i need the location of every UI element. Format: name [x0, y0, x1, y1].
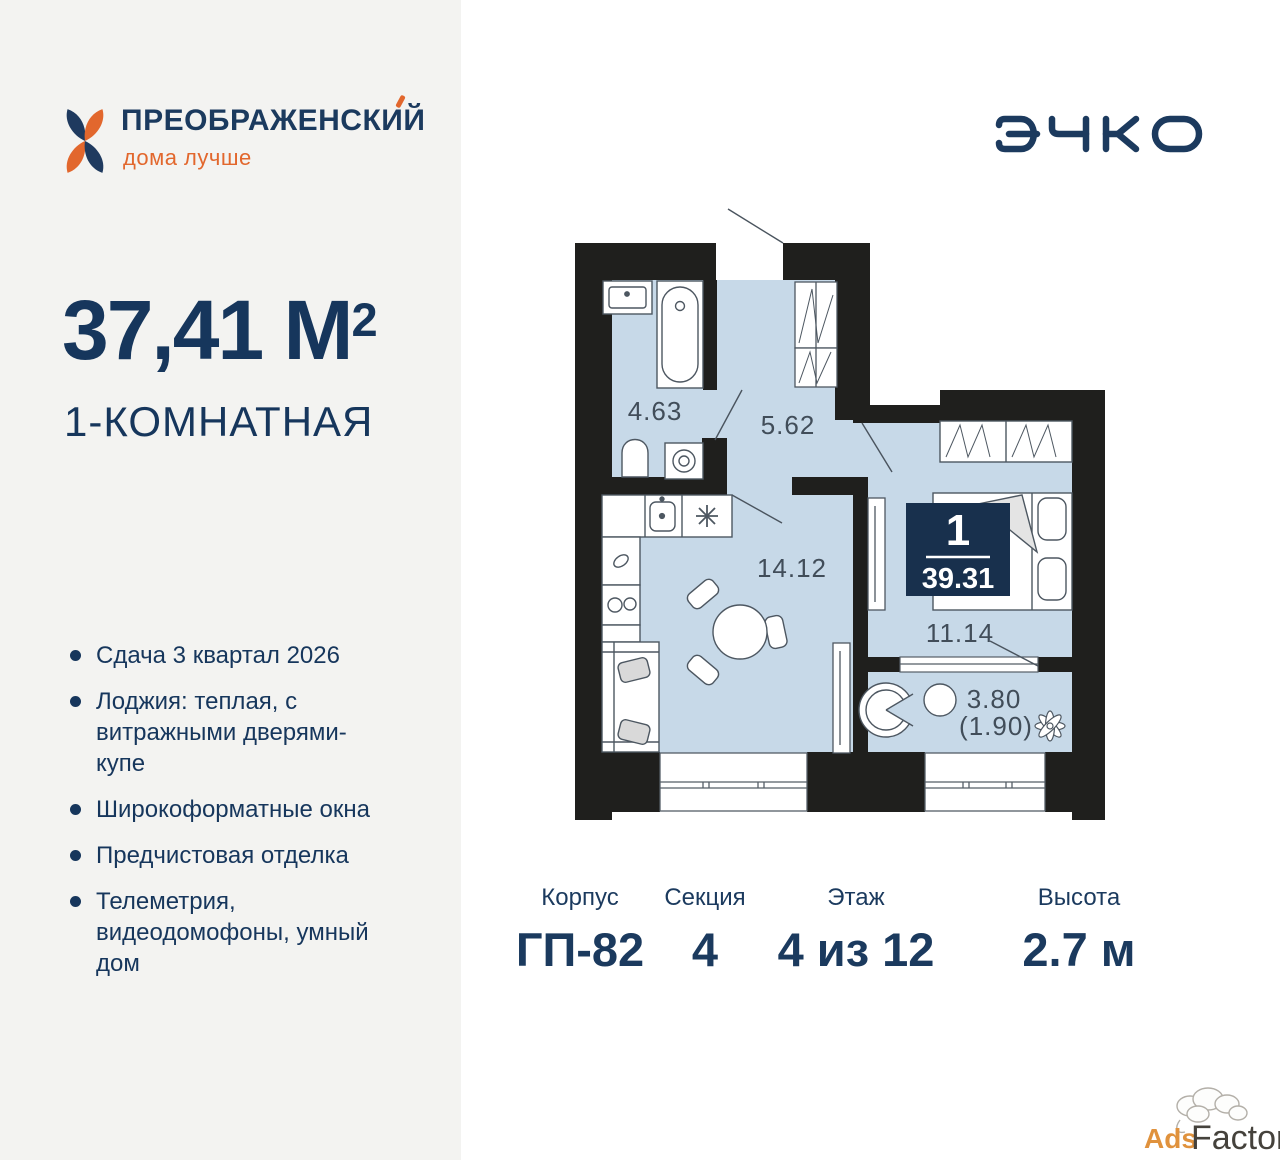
detail-value: 4: [664, 922, 745, 977]
loggia-table-icon: [924, 684, 956, 716]
flyer: ПРЕОБРАЖЕНСКИЙ дома лучше ЭНКО 37,41 М2: [0, 0, 1280, 1160]
detail-etazh: Этаж 4 из 12: [778, 884, 935, 977]
bullet-dot-icon: [70, 896, 81, 907]
watermark-ads: Ads: [1144, 1123, 1197, 1154]
area-badge: 1 39.31: [906, 503, 1010, 596]
bullet-dot-icon: [70, 804, 81, 815]
adsfactory-watermark: Ads Factory: [1130, 1080, 1280, 1156]
loggia-window: [925, 753, 1045, 811]
room-label-loggia: 3.80: [967, 684, 1022, 714]
room-label-bedroom: 11.14: [926, 618, 994, 648]
detail-label: Корпус: [516, 884, 644, 912]
bedroom-wardrobe-icon: [940, 421, 1072, 462]
toilet-icon: [622, 440, 648, 478]
brand-pinwheel-icon: [56, 105, 114, 177]
brand-name: ПРЕОБРАЖЕНСКИЙ: [121, 104, 451, 138]
room-label-kitchen: 14.12: [757, 553, 827, 583]
detail-vysota: Высота 2.7 м: [1022, 884, 1135, 977]
list-item: Лоджия: теплая, с витражными дверями-куп…: [70, 686, 375, 779]
badge-total-area: 39.31: [922, 563, 995, 595]
list-item: Предчистовая отделка: [70, 840, 375, 871]
detail-value: ГП-82: [516, 922, 644, 977]
bullet-dot-icon: [70, 696, 81, 707]
room-label-hallway: 5.62: [761, 410, 816, 440]
area-superscript: 2: [352, 293, 378, 346]
brand-tagline: дома лучше: [123, 145, 451, 171]
apartment-type-title: 1-КОМНАТНАЯ: [64, 398, 373, 446]
enko-letter-o: [1155, 119, 1199, 149]
watermark-factory: Factory: [1191, 1119, 1280, 1156]
floor-plan: 4.63 5.62 14.12 11.14 3.80 (1.90) 1 39.3…: [570, 205, 1110, 825]
enko-letter-e: [999, 119, 1037, 149]
bathroom-sink-icon: [603, 281, 652, 314]
sofa-icon: [602, 642, 659, 752]
enko-letter-n: [1052, 119, 1086, 149]
room-label-bathroom: 4.63: [628, 396, 683, 426]
list-item: Широкоформатные окна: [70, 794, 375, 825]
washing-machine-icon: [665, 443, 703, 479]
stove-icon: [696, 505, 718, 527]
badge-rooms-count: 1: [946, 506, 970, 555]
kitchen-window: [660, 753, 807, 811]
detail-label: Этаж: [778, 884, 935, 912]
feature-list: Сдача 3 квартал 2026 Лоджия: теплая, с в…: [70, 640, 375, 994]
detail-value: 4 из 12: [778, 922, 935, 977]
hall-wardrobe-icon: [795, 282, 837, 387]
apartment-area-title: 37,41 М2: [62, 282, 378, 379]
detail-label: Секция: [664, 884, 745, 912]
detail-label: Высота: [1022, 884, 1135, 912]
loggia-glazed-partition: [900, 657, 1038, 672]
bullet-dot-icon: [70, 850, 81, 861]
kitchen-counter: [602, 495, 732, 537]
bullet-dot-icon: [70, 650, 81, 661]
detail-sekcia: Секция 4: [664, 884, 745, 977]
kitchen-cabinets: [602, 537, 640, 642]
list-item: Сдача 3 квартал 2026: [70, 640, 375, 671]
room-label-loggia-secondary: (1.90): [959, 711, 1033, 741]
enko-letter-k: [1106, 119, 1136, 149]
plant-icon: [1035, 711, 1065, 741]
enko-logo: [993, 112, 1203, 156]
detail-value: 2.7 м: [1022, 922, 1135, 977]
list-item: Телеметрия, видеодомофоны, умный дом: [70, 886, 375, 979]
bathtub-icon: [657, 281, 703, 388]
detail-korpus: Корпус ГП-82: [516, 884, 644, 977]
